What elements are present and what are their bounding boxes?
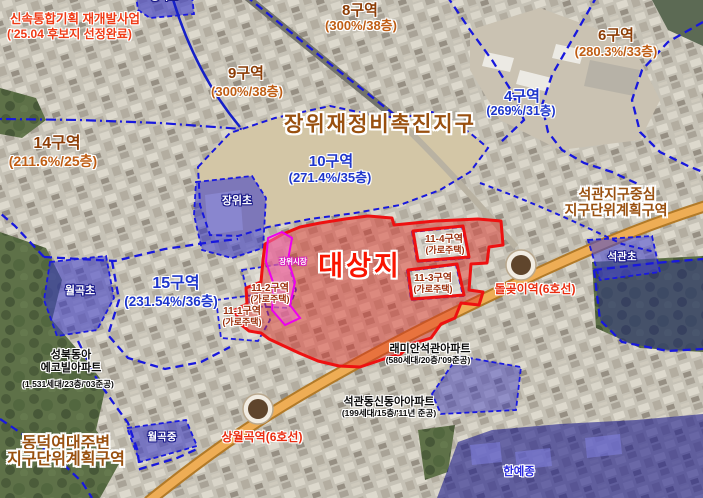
- zone-9-label: 9구역: [228, 66, 264, 82]
- zone-11-3-label: 11-3구역: [414, 274, 452, 285]
- zone-15-label: 15구역: [152, 276, 199, 293]
- zone-8-value: (300%/38층): [325, 19, 397, 33]
- dongduk-plan-district-line2: 지구단위계획구역: [7, 452, 125, 469]
- wolgok-elementary-label: 월곡초: [65, 286, 95, 298]
- seokgwan-elementary-label: 석관초: [608, 252, 637, 263]
- ecovill-apartment-value: (1,531세대/23층/'03준공): [22, 380, 114, 389]
- zone-11-2-label: 11-2구역: [251, 284, 289, 295]
- zone-9-value: (300%/38층): [211, 85, 283, 99]
- satellite-map-canvas: [0, 0, 703, 498]
- zone-11-4-label: 11-4구역: [425, 235, 463, 246]
- raemian-apartment-label: 래미안석관아파트: [390, 344, 471, 356]
- zone-11-4-value: (가로주택): [425, 246, 464, 255]
- zone-14-value: (211.6%/25층): [9, 154, 97, 169]
- seokgwan-plan-district-line1: 석관지구중심: [578, 187, 655, 202]
- jangwi-market-label: 장위시장: [279, 258, 307, 266]
- raemian-apartment-value: (580세대/20층/'09준공): [386, 356, 471, 365]
- station-marker-sangwolgok: [243, 394, 273, 424]
- seokgwan-plan-district-line2: 지구단위계획구역: [564, 203, 667, 218]
- zone-4-label: 4구역: [504, 89, 540, 105]
- sindonga-apartment-value: (199세대/15층/'11년 준공): [342, 409, 436, 418]
- fast-track-note-line1: 신속통합기획 재개발사업: [10, 13, 140, 26]
- zone-11-2-value: (가로주택): [250, 295, 289, 304]
- hanyejong-label: 한예종: [503, 466, 535, 478]
- target-site-label: 대상지: [318, 252, 402, 280]
- satellite-map[interactable]: 신속통합기획 재개발사업 ('25.04 후보지 선정완료) 8구역 (300%…: [0, 0, 703, 498]
- jangwi-elementary-label: 장위초: [222, 196, 252, 208]
- zone-10-label: 10구역: [309, 154, 353, 170]
- wolgok-middle-label: 월곡중: [148, 432, 177, 443]
- fast-track-note-line2: ('25.04 후보지 선정완료): [7, 28, 132, 41]
- zone-4-value: (269%/31층): [486, 105, 555, 118]
- zone-6-value: (280.3%/33층): [575, 45, 658, 59]
- ecovill-apartment-line2: 에코빌아파트: [41, 363, 102, 375]
- zone-10-value: (271.4%/35층): [289, 171, 372, 185]
- zone-15-value: (231.54%/36층): [124, 295, 217, 309]
- ecovill-apartment-line1: 성북동아: [51, 350, 91, 362]
- zone-11-3-value: (가로주택): [413, 285, 452, 294]
- zone-6-label: 6구역: [598, 28, 634, 44]
- station-marker-dolgoji: [506, 250, 536, 280]
- zone-11-1-value: (가로주택): [222, 318, 261, 327]
- sindonga-apartment-label: 석관동신동아아파트: [343, 397, 434, 409]
- janggok-elementary-label: 장곡초: [150, 0, 178, 4]
- station-dolgoji-label: 돌곶이역(6호선): [495, 283, 576, 296]
- district-title: 장위재정비촉진지구: [284, 114, 476, 136]
- zone-8-label: 8구역: [342, 3, 378, 19]
- zone-11-1-label: 11-1구역: [223, 307, 261, 318]
- zone-14-label: 14구역: [33, 136, 80, 153]
- station-sangwolgok-label: 상월곡역(6호선): [222, 431, 303, 444]
